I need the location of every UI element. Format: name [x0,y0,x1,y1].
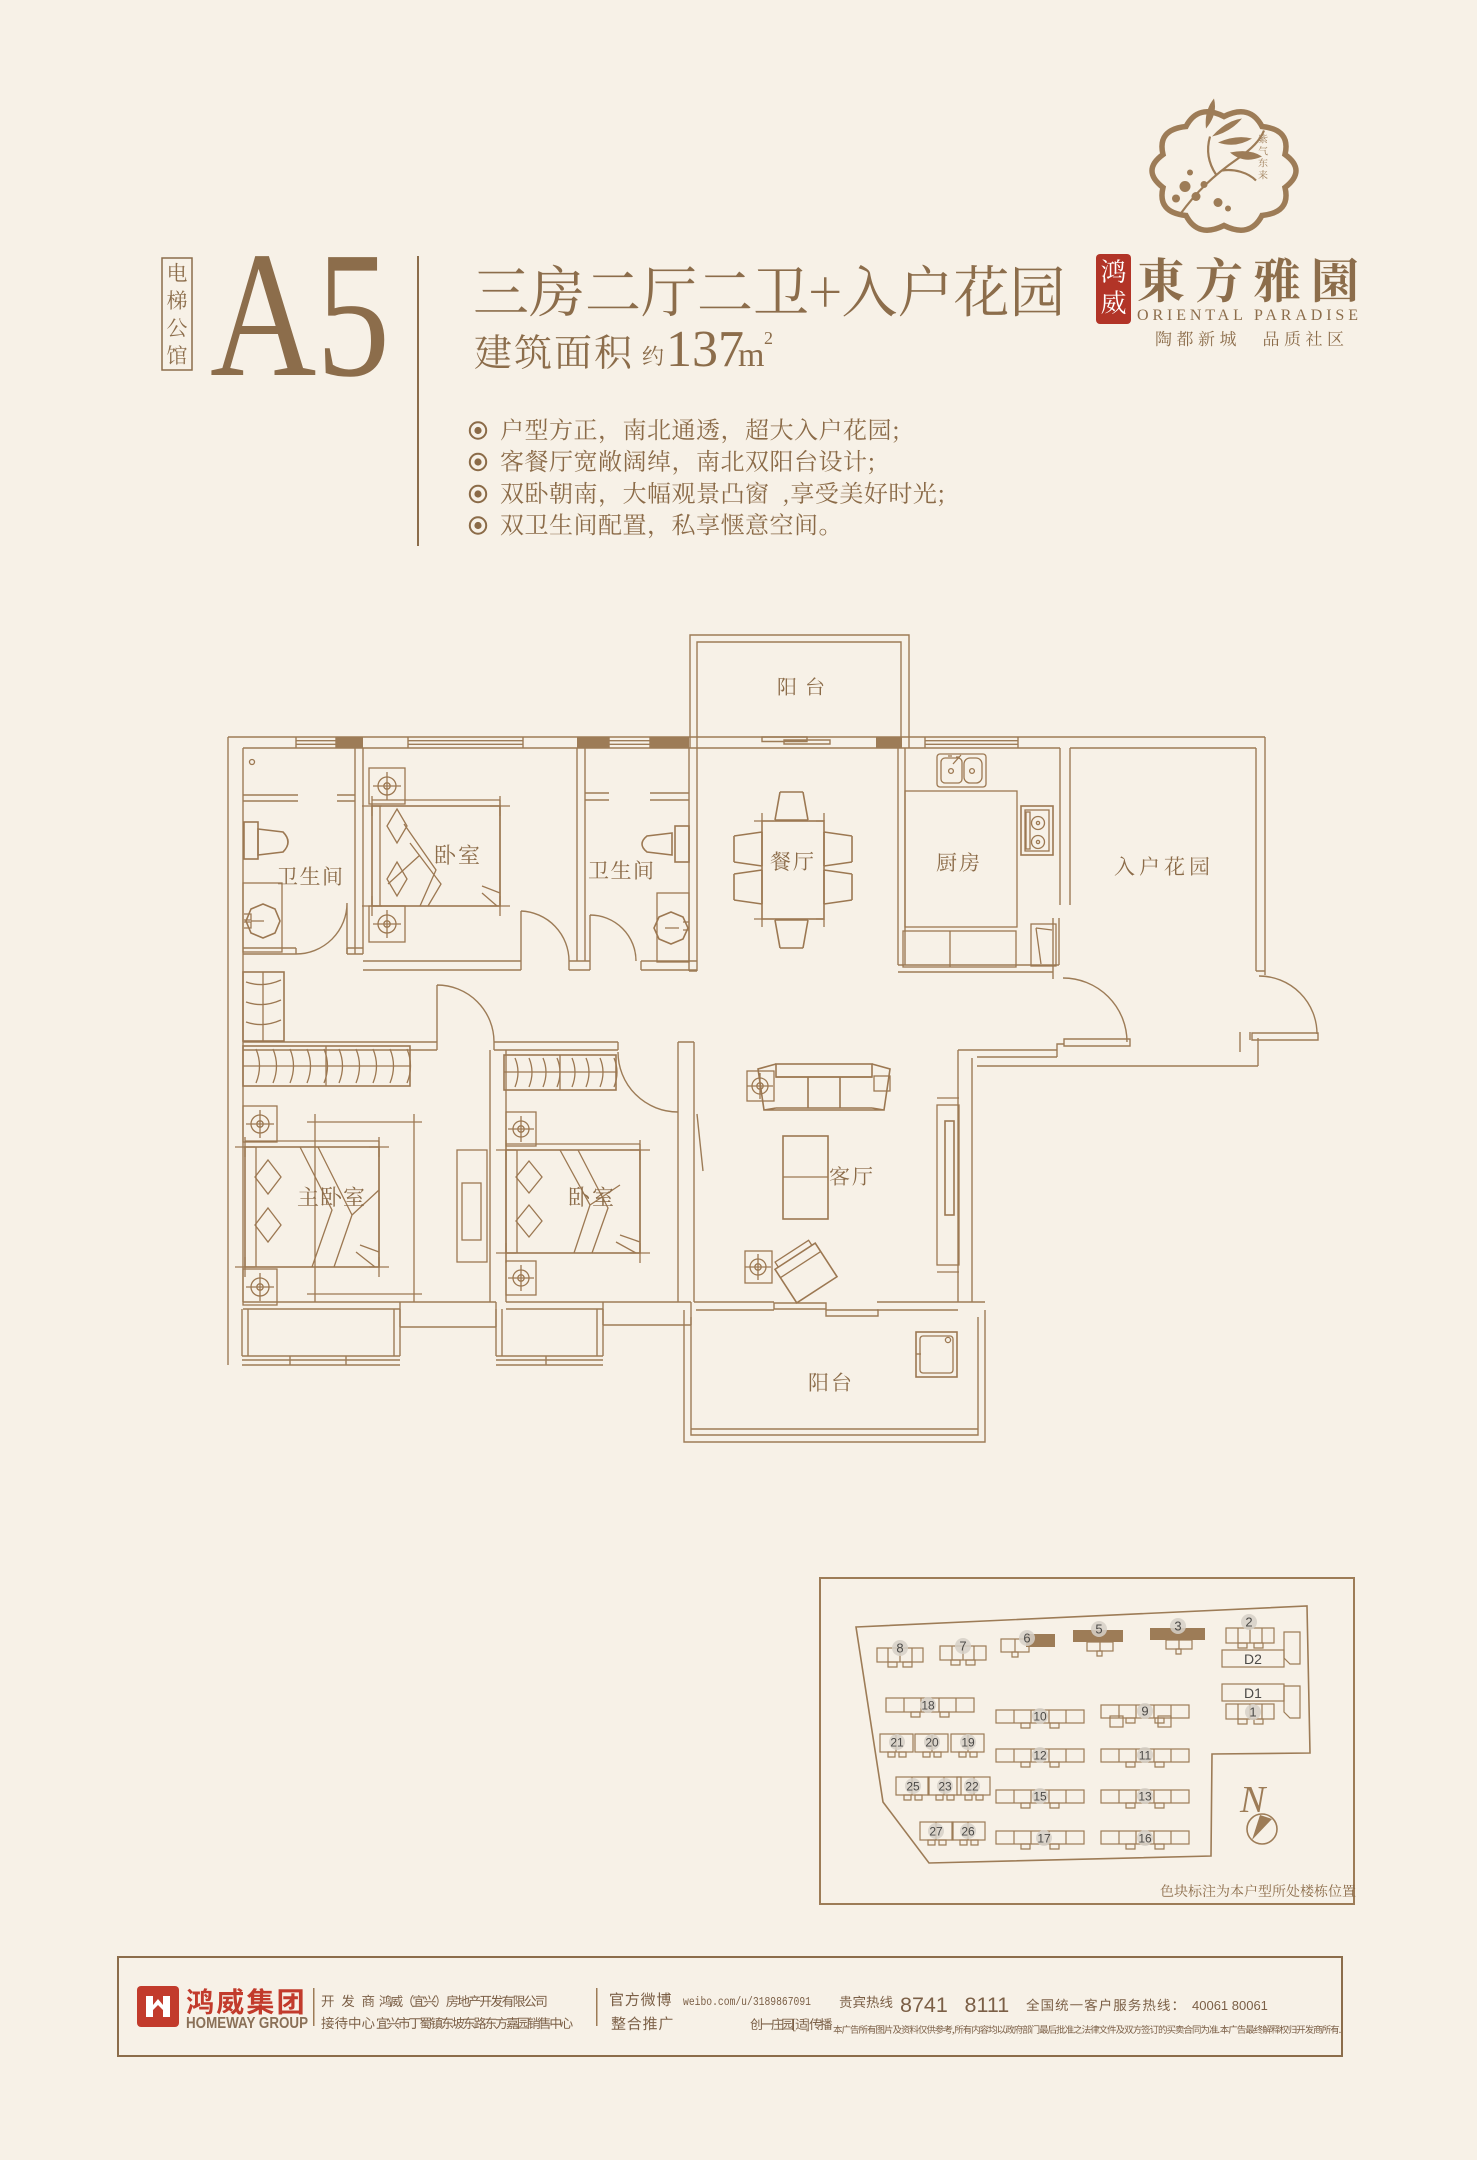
svg-text:12: 12 [1033,1749,1047,1763]
svg-text:25: 25 [906,1780,920,1794]
svg-text:10: 10 [1033,1710,1047,1724]
svg-text:27: 27 [929,1825,943,1839]
svg-text:16: 16 [1138,1832,1152,1846]
svg-text:D2: D2 [1244,1651,1262,1667]
svg-text:3: 3 [1174,1619,1181,1634]
svg-text:8: 8 [896,1641,903,1656]
svg-text:m: m [738,337,764,374]
svg-text:A5: A5 [210,215,390,414]
svg-text:5: 5 [1095,1622,1102,1637]
svg-text:15: 15 [1033,1790,1047,1804]
svg-text:23: 23 [938,1780,952,1794]
svg-text:21: 21 [890,1736,904,1750]
svg-text:137: 137 [666,321,744,378]
svg-text:6: 6 [1023,1631,1030,1646]
svg-text:26: 26 [961,1825,975,1839]
svg-text:9: 9 [1141,1704,1148,1719]
svg-text:8741 8111: 8741 8111 [900,1993,1009,2017]
svg-text:19: 19 [961,1736,975,1750]
svg-text:D1: D1 [1244,1685,1262,1701]
svg-text:18: 18 [921,1699,935,1713]
svg-text:20: 20 [925,1736,939,1750]
svg-text:22: 22 [965,1780,979,1794]
svg-text:weibo.com/u/3189867091: weibo.com/u/3189867091 [683,1996,811,2009]
svg-text:13: 13 [1138,1790,1152,1804]
svg-text:2: 2 [1245,1615,1252,1630]
svg-text:11: 11 [1139,1749,1152,1763]
svg-text:1: 1 [1249,1705,1256,1720]
svg-text:40061 80061: 40061 80061 [1192,1998,1268,2013]
svg-text:17: 17 [1037,1832,1051,1846]
svg-text:7: 7 [959,1639,966,1654]
svg-text:HOMEWAY GROUP: HOMEWAY GROUP [186,2015,308,2032]
svg-text:2: 2 [764,328,773,348]
